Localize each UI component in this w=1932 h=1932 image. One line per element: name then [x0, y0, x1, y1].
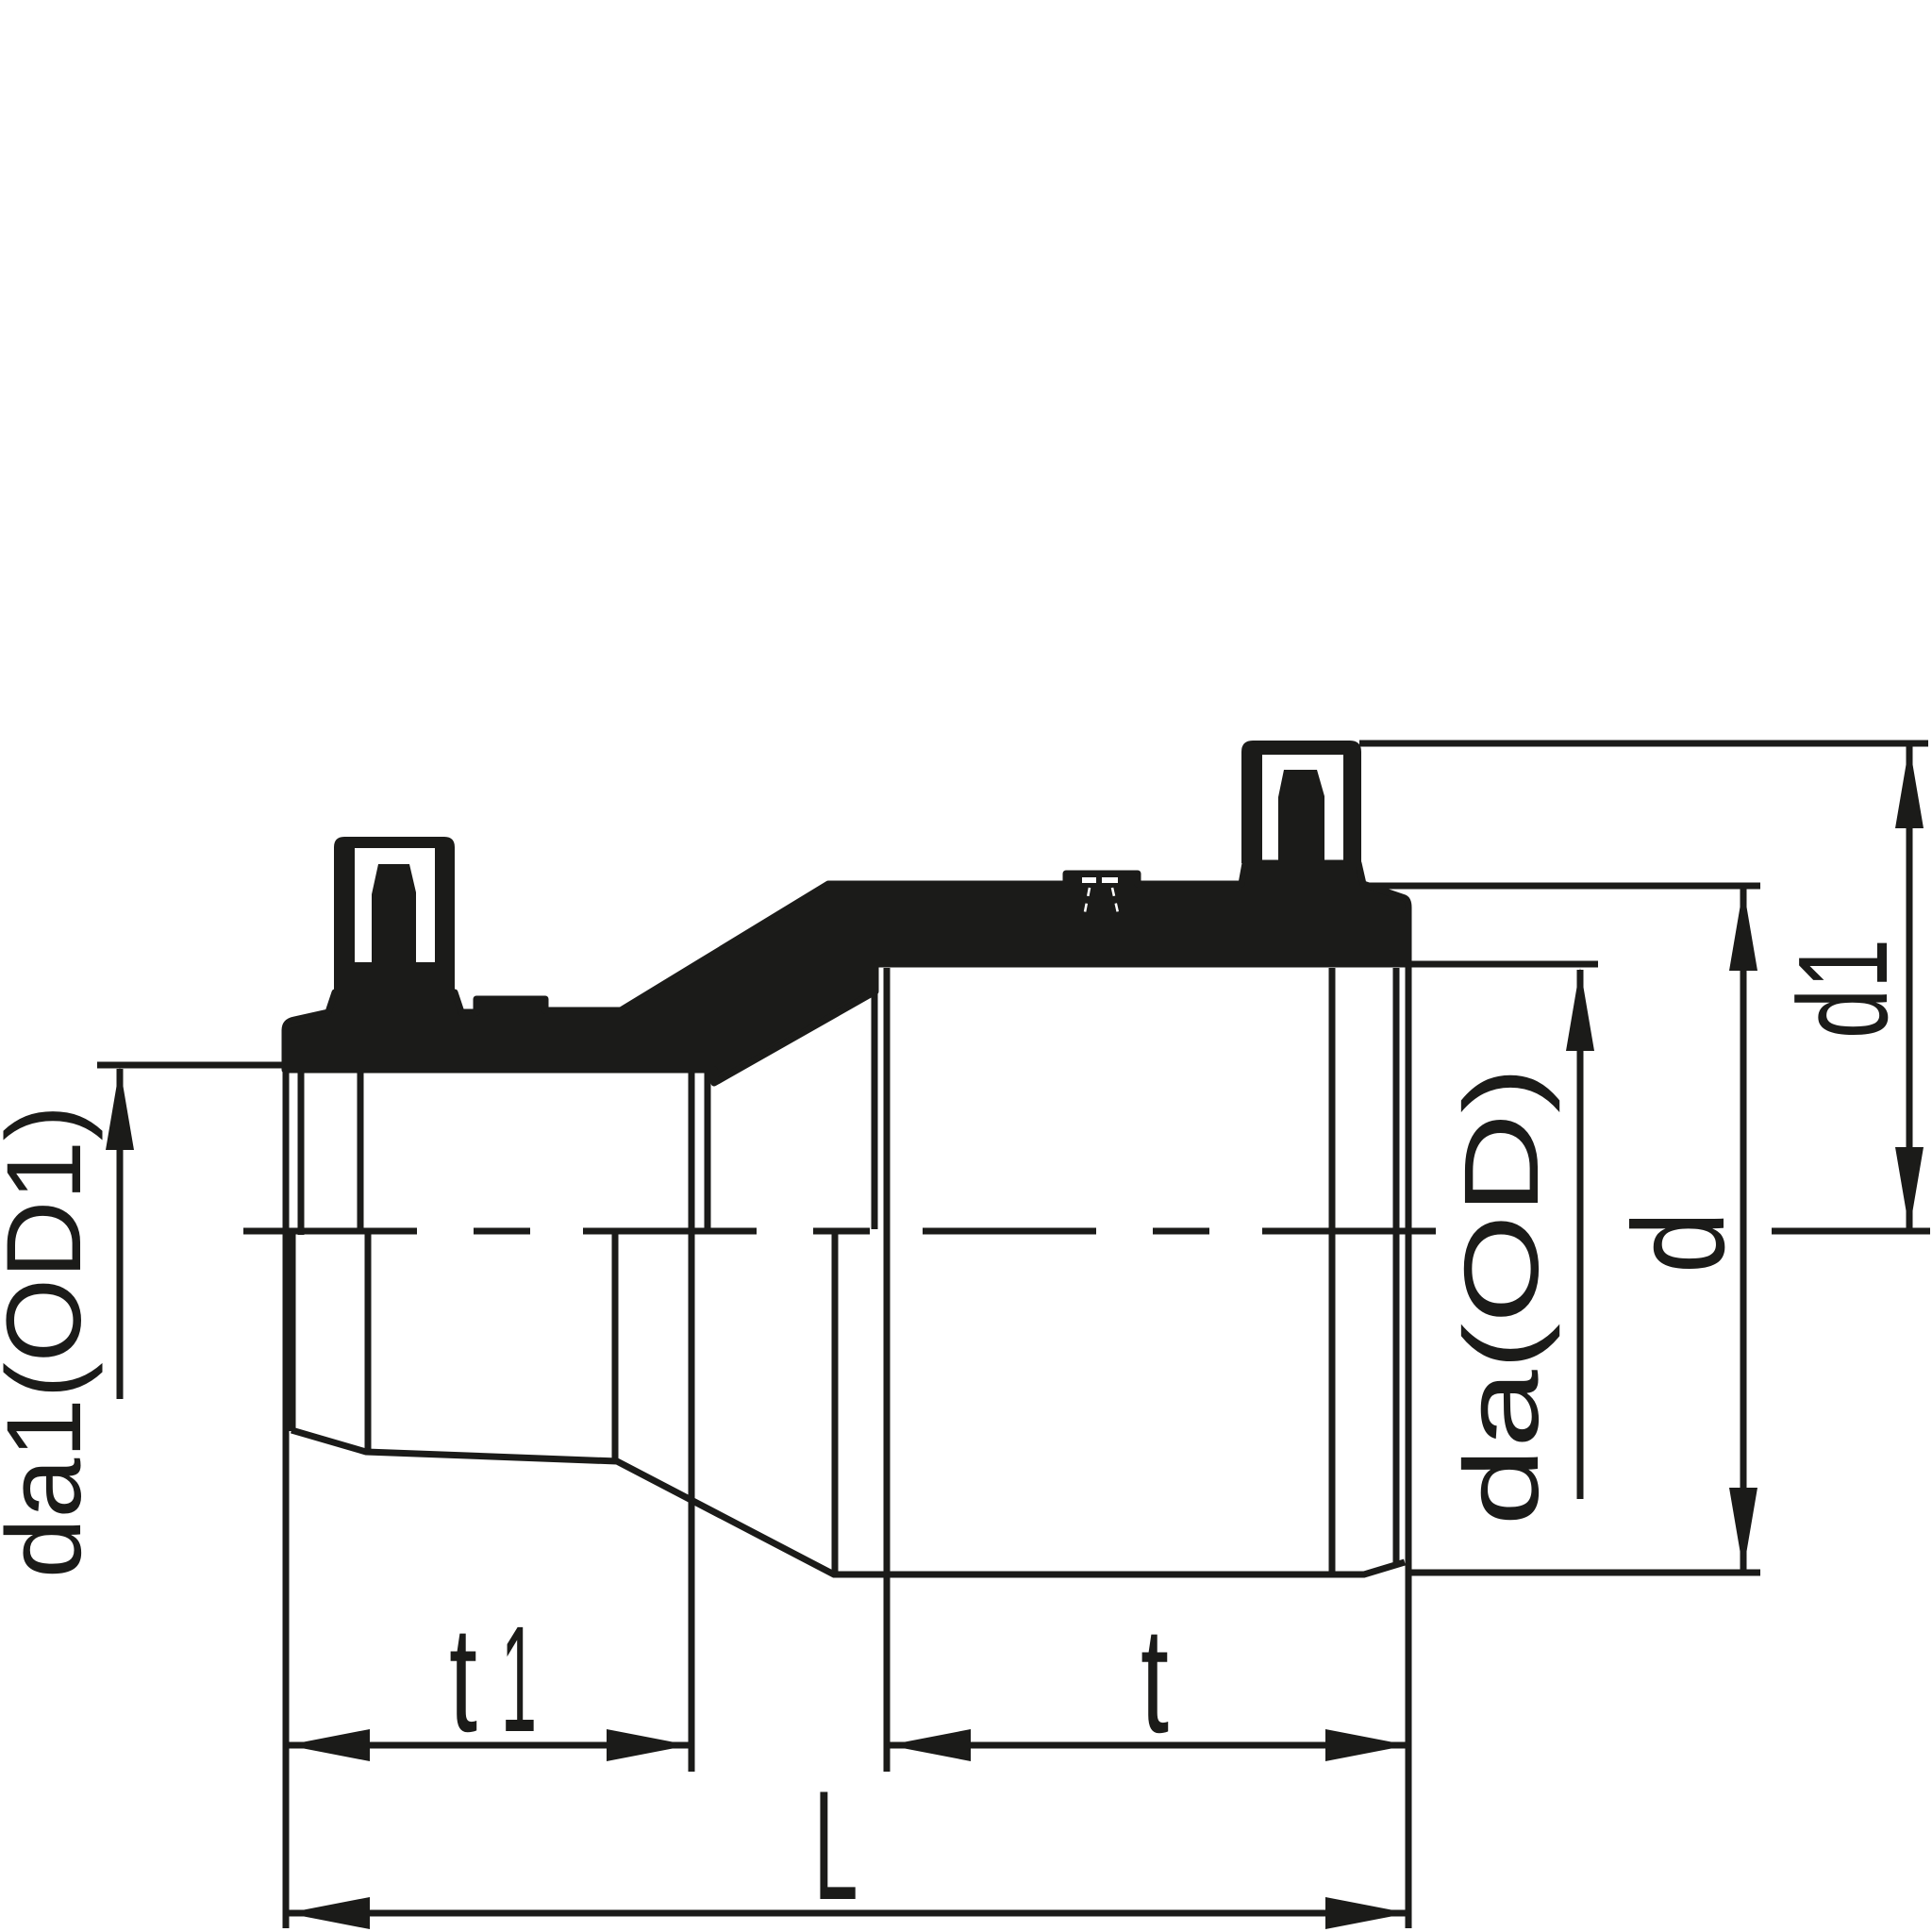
- svg-text:da1(OD1): da1(OD1): [0, 1105, 103, 1578]
- svg-text:d: d: [1607, 1211, 1752, 1274]
- svg-text:1: 1: [501, 1594, 537, 1763]
- svg-text:da(OD): da(OD): [1442, 1067, 1560, 1526]
- svg-text:t: t: [449, 1594, 477, 1763]
- svg-text:d1: d1: [1772, 939, 1914, 1039]
- svg-text:t: t: [1141, 1595, 1169, 1764]
- svg-text:L: L: [814, 1758, 858, 1932]
